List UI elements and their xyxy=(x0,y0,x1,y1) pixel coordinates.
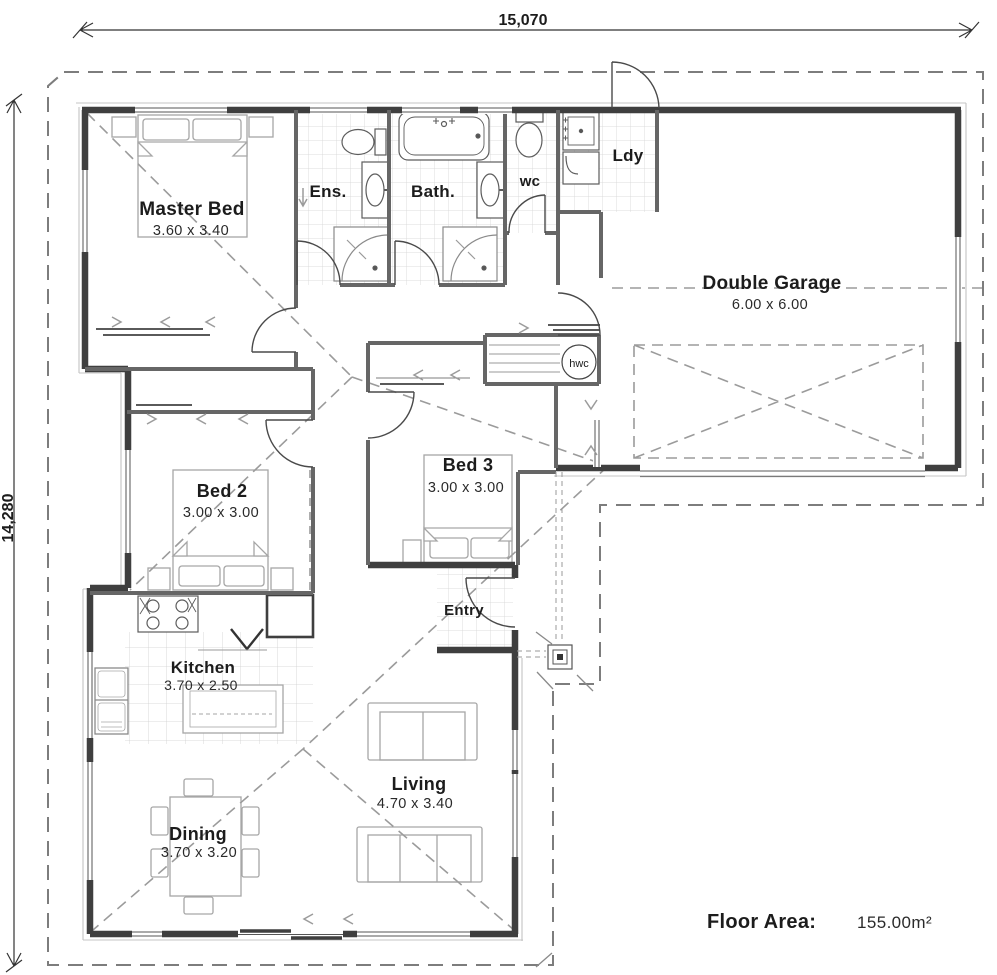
left-dimension-value: 14,280 xyxy=(0,493,17,542)
kitchen-size: 3.70 x 2.50 xyxy=(164,677,238,693)
shower-drain xyxy=(373,266,377,270)
top-dimension-value: 15,070 xyxy=(499,12,548,29)
bed2-door xyxy=(266,420,313,467)
porch-beams xyxy=(517,472,562,657)
garage-label: Double Garage xyxy=(702,273,841,294)
laundry-label: Ldy xyxy=(612,146,643,165)
pantry xyxy=(267,595,313,637)
garage-truss-cross xyxy=(634,345,923,458)
dining-chair xyxy=(184,897,213,914)
wc-fixtures xyxy=(516,112,543,157)
pillow xyxy=(179,566,220,586)
basin-icon xyxy=(481,174,499,206)
cooktop xyxy=(138,596,198,632)
living-size: 4.70 x 3.40 xyxy=(377,796,453,812)
dining-label: Dining xyxy=(169,824,227,844)
floor-area-block: Floor Area: 155.00m² xyxy=(707,911,932,933)
kitchen-label: Kitchen xyxy=(171,658,235,677)
toilet-cistern xyxy=(516,112,543,122)
laundry-fixtures xyxy=(563,112,599,184)
hall-cupboard-sliders xyxy=(548,325,600,330)
toilet-icon xyxy=(516,123,542,157)
basin-icon xyxy=(366,174,384,206)
roof-valley-line xyxy=(352,377,608,466)
master-bed-door xyxy=(252,308,296,352)
bedside-table xyxy=(112,117,136,137)
pillow xyxy=(143,119,189,140)
master-robe-sliders xyxy=(96,329,210,335)
floor-plan-drawing: 15,070 14,280 Master Bed 3.60 x 3.40 Ens… xyxy=(0,0,997,975)
bedside-table xyxy=(249,117,273,137)
bed2-size: 3.00 x 3.00 xyxy=(183,505,259,521)
toilet-icon xyxy=(342,130,374,155)
bed2-robe-arrows xyxy=(147,414,248,424)
pillow xyxy=(224,566,264,586)
dining-size: 3.70 x 3.20 xyxy=(161,845,237,861)
fridge xyxy=(95,668,128,734)
bedside-table xyxy=(148,568,170,590)
bed3-door xyxy=(368,392,414,438)
patio-door-arrows xyxy=(304,914,353,924)
bedside-table xyxy=(271,568,293,590)
bed3-size: 3.00 x 3.00 xyxy=(428,480,504,496)
floor-area-value: 155.00m² xyxy=(857,913,932,932)
toilet-cistern xyxy=(375,129,386,155)
burner xyxy=(147,600,159,612)
garage-internal-door xyxy=(558,293,600,335)
dining-chair xyxy=(242,849,259,877)
bed3-label: Bed 3 xyxy=(443,455,494,475)
eave-corner-ticks xyxy=(536,632,593,967)
burner xyxy=(176,600,188,612)
porch-post-core xyxy=(557,654,563,660)
bath-drain xyxy=(476,134,480,138)
master-bed-size: 3.60 x 3.40 xyxy=(153,223,229,239)
floor-plan-sheet: 15,070 14,280 Master Bed 3.60 x 3.40 Ens… xyxy=(0,0,997,975)
wc-label: wc xyxy=(519,173,541,190)
dining-chair xyxy=(184,779,213,796)
pillow xyxy=(193,119,241,140)
bedside-table xyxy=(403,540,421,564)
hwc-label: hwc xyxy=(569,358,589,370)
tub-drain xyxy=(579,129,582,132)
bed2-label: Bed 2 xyxy=(197,481,248,501)
burner xyxy=(176,617,188,629)
ensuite-label: Ens. xyxy=(309,182,346,201)
dining-chair xyxy=(151,807,168,835)
garage-size: 6.00 x 6.00 xyxy=(732,297,808,313)
dining-chair xyxy=(242,807,259,835)
hall-arrow xyxy=(519,323,528,333)
burner xyxy=(147,617,159,629)
shower-drain xyxy=(482,266,486,270)
floor-area-label: Floor Area: xyxy=(707,911,816,933)
linen-shelves xyxy=(489,345,560,372)
entry-label: Entry xyxy=(444,602,484,619)
master-robe-arrows xyxy=(112,317,215,327)
bathroom-label: Bath. xyxy=(411,182,455,201)
living-label: Living xyxy=(392,774,447,794)
laundry-external-door xyxy=(612,62,659,108)
entry-porch xyxy=(517,472,572,669)
master-bed-label: Master Bed xyxy=(139,199,244,220)
